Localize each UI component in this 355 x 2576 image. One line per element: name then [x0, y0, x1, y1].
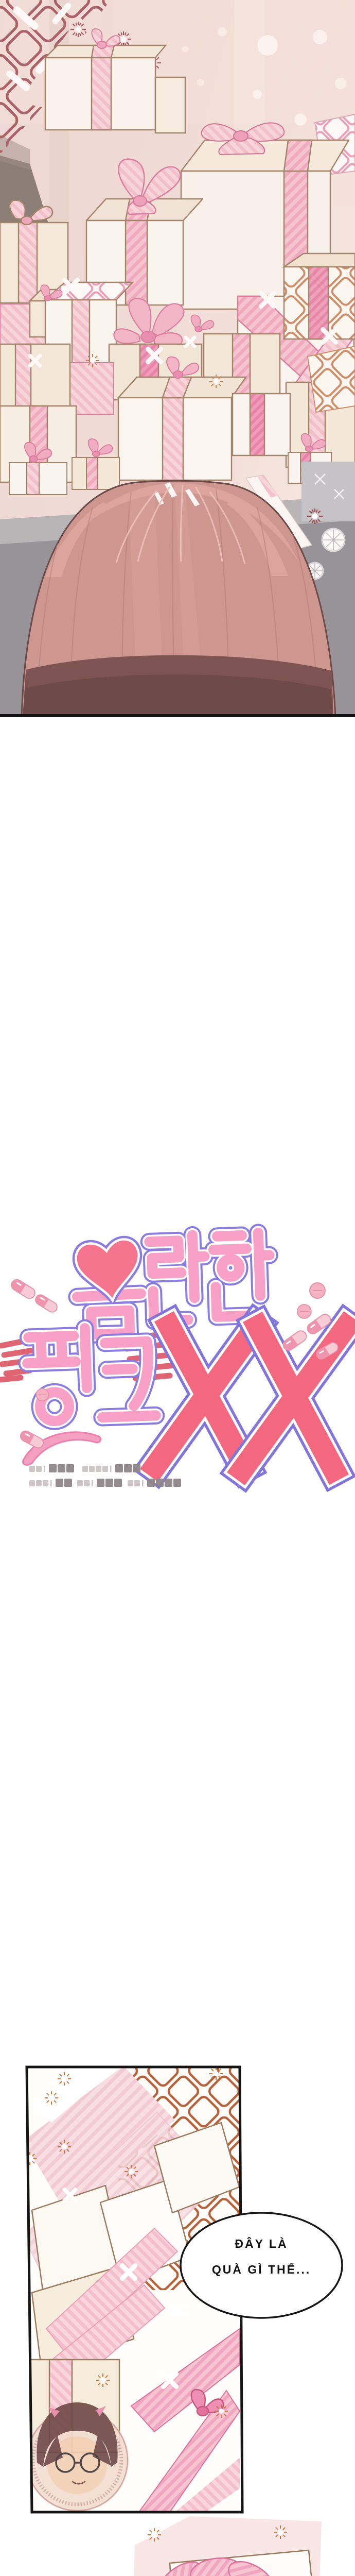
svg-text:QUÀ GÌ THẾ...: QUÀ GÌ THẾ...	[212, 2262, 311, 2276]
svg-text:ĐÂY LÀ: ĐÂY LÀ	[235, 2236, 288, 2250]
